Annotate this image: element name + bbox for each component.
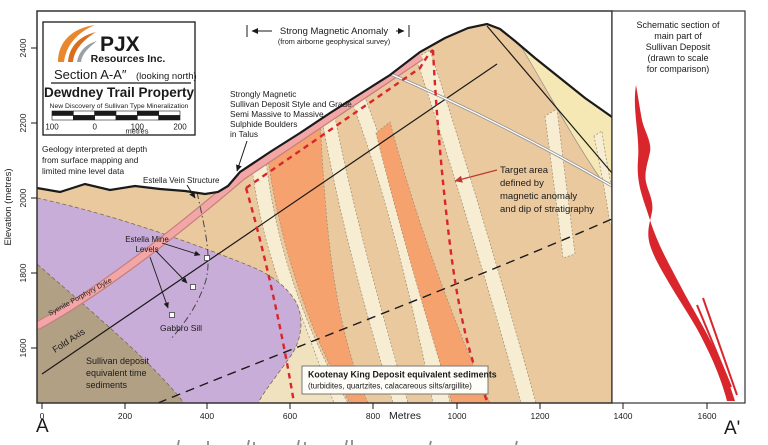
kootenay-line2: (turbidites, quartzites, calacareous sil…: [308, 382, 472, 391]
x-tick-label: 400: [200, 411, 214, 421]
schematic-title-line: Sullivan Deposit: [646, 42, 711, 52]
sullivan-sediments-line: equivalent time: [86, 368, 147, 378]
estella-vein-label: Estella Vein Structure: [143, 176, 220, 185]
scale-bar-segment: [95, 111, 116, 116]
schematic-title-line: for comparison): [647, 64, 710, 74]
y-tick-label: 2200: [18, 113, 28, 132]
scale-bar-segment: [159, 111, 180, 116]
section-end-label: A': [724, 418, 740, 439]
strongly-magnetic-line: in Talus: [230, 129, 258, 139]
cross-section-figure: Schematic section of main part of Sulliv…: [0, 0, 768, 445]
gabbro-sill-label: Gabbro Sill: [160, 323, 202, 333]
scale-bar-number: 200: [173, 123, 187, 132]
scale-unit-label: metres: [126, 127, 149, 136]
geology-note-line: from surface mapping and: [42, 155, 139, 165]
property-title: Dewdney Trail Property: [44, 85, 195, 100]
x-tick-label: 1400: [614, 411, 633, 421]
scale-bar-segment: [95, 116, 116, 121]
target-area-line: Target area: [500, 165, 549, 176]
scale-bar-segment: [137, 111, 158, 116]
scale-bar: [52, 111, 180, 120]
x-axis: 02004006008001000120014001600: [40, 403, 717, 421]
section-title: Section A-A″: [54, 67, 127, 82]
kootenay-king-label-box: Kootenay King Deposit equivalent sedimen…: [302, 366, 497, 394]
x-tick-label: 1000: [448, 411, 467, 421]
y-axis: 24002200200018001600: [18, 38, 37, 357]
estella-mine-label-line: Levels: [135, 245, 158, 254]
scale-bar-number: 100: [45, 123, 59, 132]
strongly-magnetic-line: Sulphide Boulders: [230, 119, 297, 129]
target-area-line: and dip of stratigraphy: [500, 204, 594, 215]
scale-bar-segment: [137, 116, 158, 121]
sullivan-sediments-line: sediments: [86, 380, 128, 390]
scale-bar-segment: [159, 116, 180, 121]
magnetic-anomaly-title: Strong Magnetic Anomaly: [280, 26, 389, 37]
scale-bar-segment: [116, 111, 137, 116]
x-tick-label: 1200: [531, 411, 550, 421]
y-tick-label: 2000: [18, 188, 28, 207]
target-area-line: defined by: [500, 178, 544, 189]
discovery-subtitle: New Discovery of Sullivan Type Mineraliz…: [50, 103, 189, 110]
strongly-magnetic-line: Sullivan Deposit Style and Grade: [230, 99, 352, 109]
scale-bar-segment: [73, 116, 94, 121]
section-subtitle: (looking north): [136, 71, 197, 82]
y-tick-label: 2400: [18, 38, 28, 57]
strongly-magnetic-line: Strongly Magnetic: [230, 89, 296, 99]
section-start-label: A: [36, 416, 49, 437]
target-area-line: magnetic anomaly: [500, 191, 577, 202]
schematic-title-line: main part of: [654, 31, 702, 41]
kootenay-line1: Kootenay King Deposit equivalent sedimen…: [308, 370, 497, 380]
scale-bar-segment: [52, 111, 73, 116]
x-tick-label: 800: [366, 411, 380, 421]
y-tick-label: 1800: [18, 263, 28, 282]
strongly-magnetic-line: Semi Massive to Massive: [230, 109, 324, 119]
x-tick-label: 1600: [698, 411, 717, 421]
x-tick-label: 200: [118, 411, 132, 421]
schematic-title-line: Schematic section of: [636, 20, 720, 30]
scale-bar-segment: [52, 116, 73, 121]
talus-arrow: [237, 141, 247, 171]
scale-bar-segment: [73, 111, 94, 116]
magnetic-anomaly-annotation: Strong Magnetic Anomaly (from airborne g…: [247, 25, 409, 46]
estella-mine-label-line: Estella Mine: [125, 235, 169, 244]
cropped-caption-fragment: [178, 440, 517, 445]
magnetic-anomaly-subtitle: (from airborne geophysical survey): [278, 37, 390, 46]
x-tick-label: 600: [283, 411, 297, 421]
pjx-logo-subtext: Resources Inc.: [91, 53, 166, 65]
x-axis-unit-label: Metres: [389, 410, 421, 422]
sullivan-sediments-line: Sullivan deposit: [86, 356, 150, 366]
geology-note-line: Geology interpreted at depth: [42, 144, 148, 154]
geology-note-line: limited mine level data: [42, 166, 124, 176]
geological-cross-section-page: { "colors": { "tan": "#EBC99E", "cream":…: [0, 0, 768, 445]
schematic-title-line: (drawn to scale: [647, 53, 708, 63]
y-axis-title: Elevation (metres): [3, 168, 14, 245]
scale-bar-segment: [116, 116, 137, 121]
scale-bar-number: 0: [92, 123, 97, 132]
legend-box: PJX Resources Inc. Section A-A″ (looking…: [43, 22, 197, 136]
y-tick-label: 1600: [18, 338, 28, 357]
